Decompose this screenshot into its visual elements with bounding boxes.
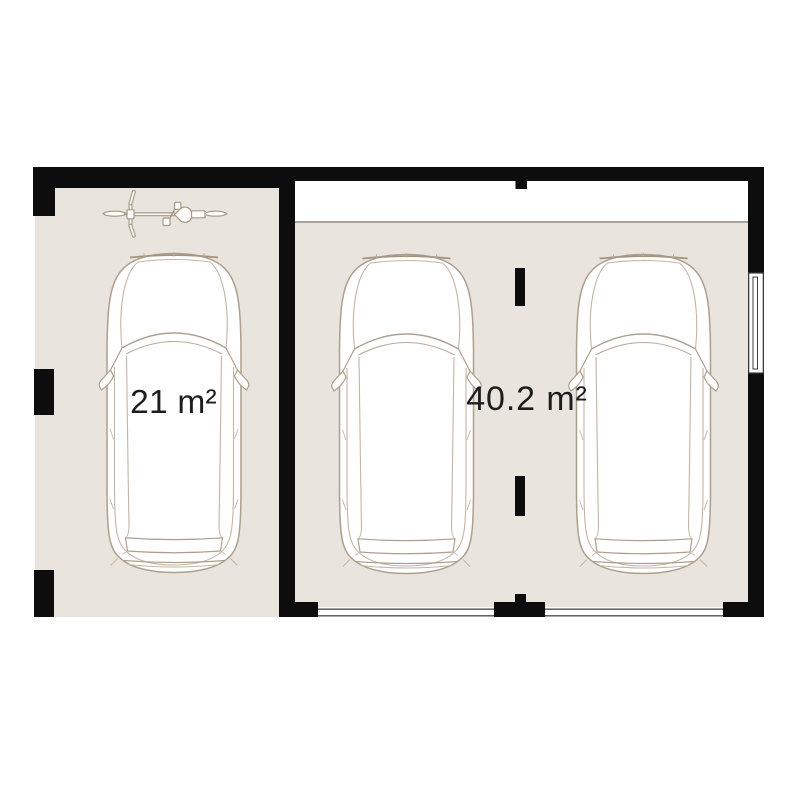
svg-text:21 m²: 21 m² — [130, 384, 217, 421]
svg-text:40.2 m²: 40.2 m² — [466, 380, 588, 418]
